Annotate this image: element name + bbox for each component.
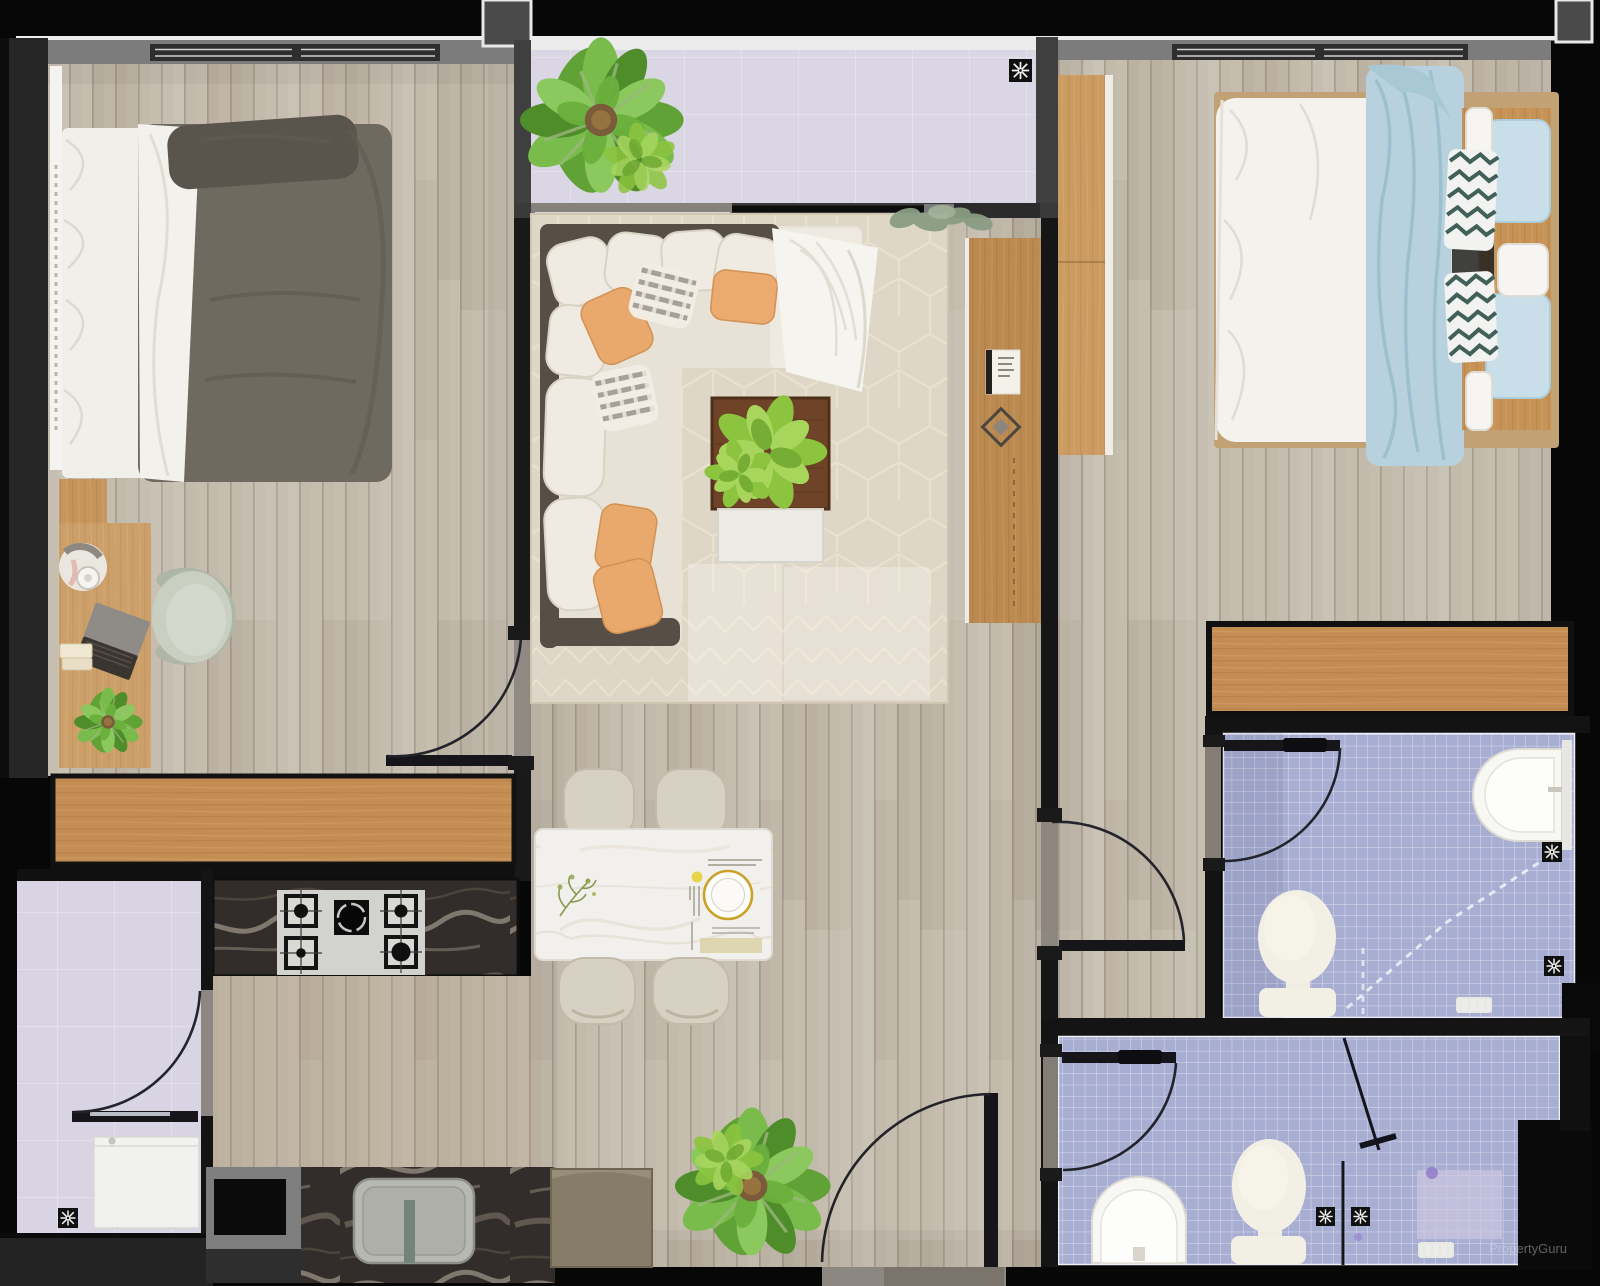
- svg-text:PropertyGuru: PropertyGuru: [1489, 1241, 1567, 1256]
